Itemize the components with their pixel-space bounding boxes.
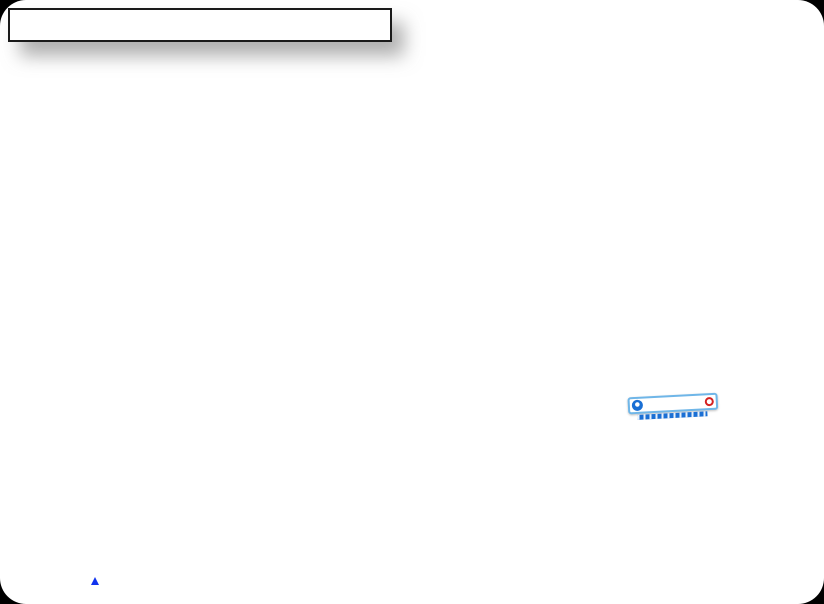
table-title <box>10 10 390 40</box>
z-axis-indicator <box>88 576 102 585</box>
material-table-panel <box>8 8 392 42</box>
screenshot-frame <box>0 0 824 604</box>
3d-viewport[interactable] <box>0 0 824 604</box>
z-axis-arrow-icon <box>91 577 99 585</box>
scaffold-scene <box>0 0 824 604</box>
sign-red-logo-icon <box>705 397 714 406</box>
sign-blue-logo-icon <box>632 400 644 412</box>
safety-passage-sign <box>627 393 718 421</box>
